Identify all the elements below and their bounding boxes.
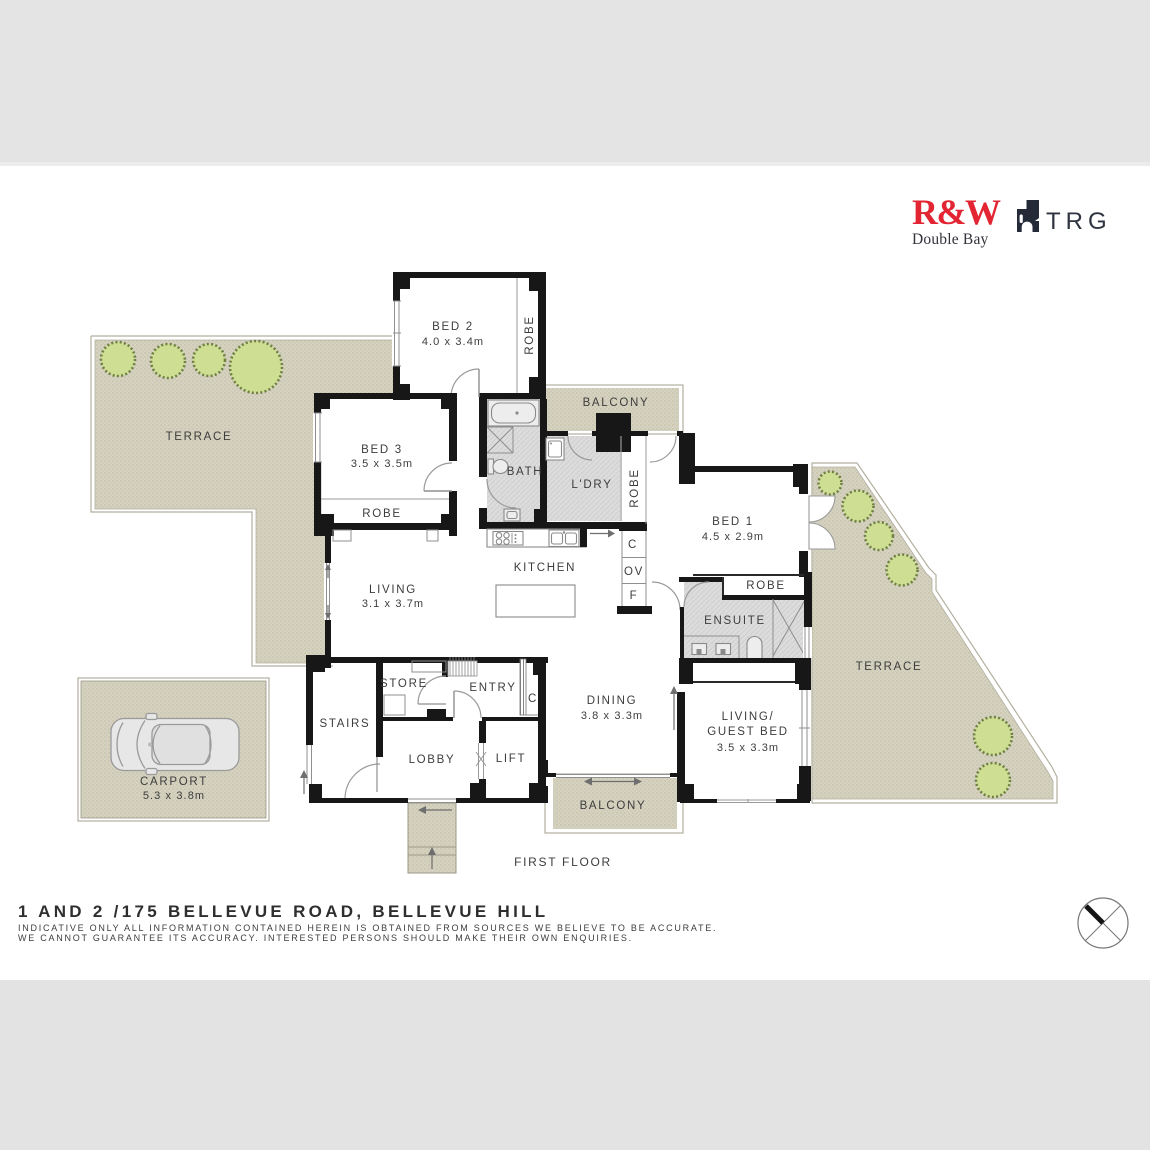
svg-text:BALCONY: BALCONY [580, 800, 647, 812]
svg-text:STORE: STORE [380, 678, 428, 690]
svg-text:LIVING: LIVING [369, 584, 417, 596]
svg-text:5.3 x 3.8m: 5.3 x 3.8m [143, 790, 205, 802]
svg-text:L'DRY: L'DRY [571, 479, 612, 491]
svg-text:OV: OV [624, 566, 644, 578]
svg-text:TERRACE: TERRACE [166, 431, 233, 443]
svg-text:FIRST FLOOR: FIRST FLOOR [514, 855, 612, 869]
svg-text:1 AND 2 /175 BELLEVUE ROAD, BE: 1 AND 2 /175 BELLEVUE ROAD, BELLEVUE HIL… [18, 902, 548, 921]
svg-text:R&W: R&W [912, 192, 1001, 232]
svg-text:WE CANNOT GUARANTEE ITS ACCURA: WE CANNOT GUARANTEE ITS ACCURACY. INTERE… [18, 933, 633, 943]
svg-text:TRG: TRG [1046, 208, 1112, 235]
svg-text:BED 2: BED 2 [432, 321, 474, 333]
svg-text:ROBE: ROBE [362, 508, 401, 520]
svg-text:GUEST BED: GUEST BED [707, 726, 789, 738]
svg-text:4.5 x 2.9m: 4.5 x 2.9m [702, 531, 764, 543]
svg-text:TERRACE: TERRACE [856, 661, 923, 673]
svg-text:BED 1: BED 1 [712, 516, 754, 528]
svg-text:ROBE: ROBE [629, 468, 641, 507]
svg-text:LIVING/: LIVING/ [722, 711, 775, 723]
svg-text:BED 3: BED 3 [361, 444, 403, 456]
svg-text:4.0 x 3.4m: 4.0 x 3.4m [422, 336, 484, 348]
svg-text:ENTRY: ENTRY [469, 682, 516, 694]
svg-text:DINING: DINING [587, 695, 637, 707]
svg-text:CARPORT: CARPORT [140, 776, 208, 788]
svg-text:Double Bay: Double Bay [912, 231, 989, 248]
svg-text:3.8 x 3.3m: 3.8 x 3.3m [581, 710, 643, 722]
svg-text:ROBE: ROBE [524, 315, 536, 354]
svg-text:ENSUITE: ENSUITE [704, 615, 766, 627]
svg-text:LOBBY: LOBBY [409, 754, 456, 766]
svg-text:BATH: BATH [507, 466, 544, 478]
svg-text:C: C [628, 539, 638, 551]
svg-text:LIFT: LIFT [496, 753, 526, 765]
svg-text:C: C [528, 693, 538, 705]
svg-text:KITCHEN: KITCHEN [514, 562, 576, 574]
svg-text:STAIRS: STAIRS [320, 718, 371, 730]
svg-text:ROBE: ROBE [746, 580, 785, 592]
svg-text:3.5 x 3.3m: 3.5 x 3.3m [717, 742, 779, 754]
svg-text:3.1 x 3.7m: 3.1 x 3.7m [362, 598, 424, 610]
svg-text:INDICATIVE ONLY ALL INFORMATIO: INDICATIVE ONLY ALL INFORMATION CONTAINE… [18, 923, 717, 933]
svg-text:BALCONY: BALCONY [583, 397, 650, 409]
svg-text:F: F [630, 590, 639, 602]
svg-text:3.5 x 3.5m: 3.5 x 3.5m [351, 458, 413, 470]
